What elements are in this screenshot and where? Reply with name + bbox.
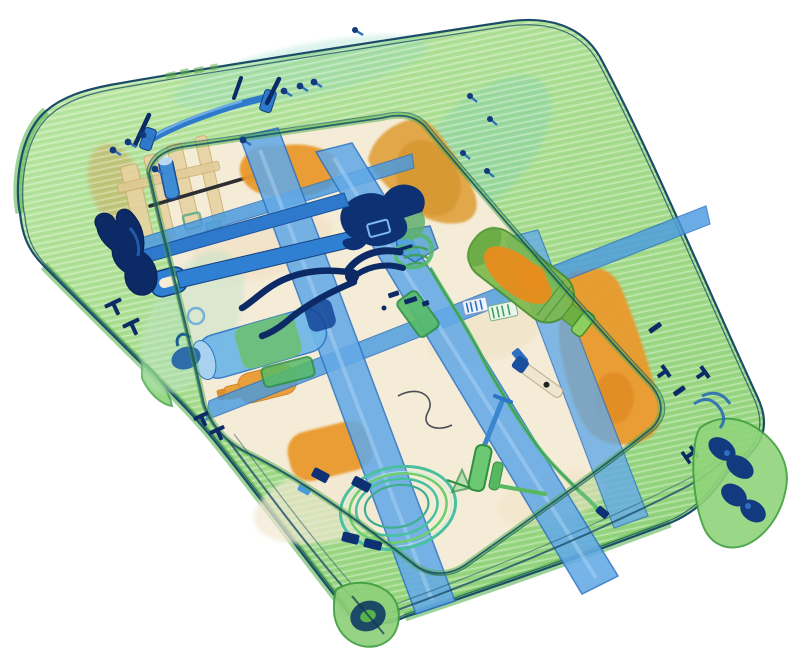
spinner-wheel-bottom — [334, 583, 399, 647]
xray-baggage-scan: Security X-ray scan of a tilted hard-she… — [0, 0, 800, 648]
wheel-housing-right — [693, 419, 787, 548]
xray-scan-image: Security X-ray scan of a tilted hard-she… — [0, 0, 800, 648]
screw — [352, 27, 363, 35]
